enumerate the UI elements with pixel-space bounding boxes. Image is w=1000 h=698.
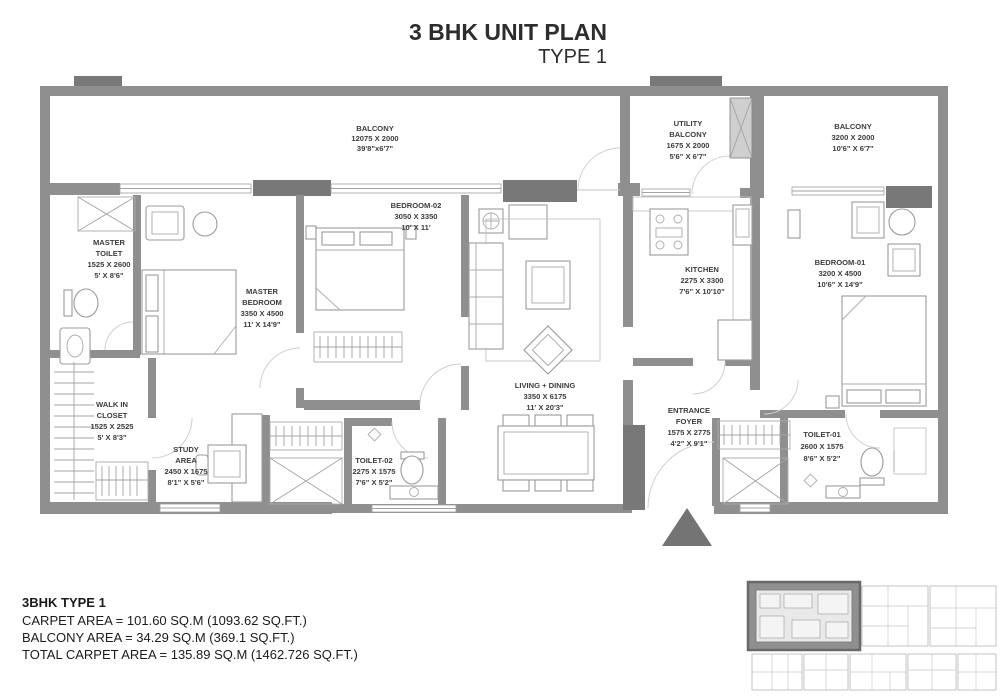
room-label-walk-in-closet: WALK IN CLOSET 1525 X 2525 5' X 8'3" bbox=[90, 400, 134, 442]
svg-text:10'6" X 6'7": 10'6" X 6'7" bbox=[832, 144, 874, 153]
bedside-table-icon bbox=[826, 396, 839, 408]
coffee-table-icon bbox=[526, 261, 570, 309]
bedroom-02-furniture bbox=[306, 226, 416, 362]
title-sub: TYPE 1 bbox=[538, 46, 607, 68]
room-label-kitchen: KITCHEN 2275 X 3300 7'6" X 10'10" bbox=[679, 265, 725, 296]
svg-text:11' X 20'3": 11' X 20'3" bbox=[526, 403, 564, 412]
room-label-master-bedroom: MASTER BEDROOM 3350 X 4500 11' X 14'9" bbox=[240, 287, 283, 329]
key-plan-highlighted-unit bbox=[748, 582, 860, 650]
svg-text:WALK IN: WALK IN bbox=[96, 400, 128, 409]
room-label-bedroom-02: BEDROOM-02 3050 X 3350 10' X 11' bbox=[391, 201, 442, 232]
master-bedroom-furniture bbox=[142, 206, 236, 354]
svg-text:3200 X 2000: 3200 X 2000 bbox=[831, 133, 874, 142]
svg-text:TOILET-01: TOILET-01 bbox=[803, 430, 841, 439]
svg-text:39'8"x6'7": 39'8"x6'7" bbox=[357, 144, 394, 153]
svg-text:BEDROOM-01: BEDROOM-01 bbox=[815, 258, 866, 267]
area-summary: 3BHK TYPE 1 CARPET AREA = 101.60 SQ.M (1… bbox=[22, 595, 358, 662]
shower-icon bbox=[894, 428, 926, 474]
svg-text:ENTRANCE: ENTRANCE bbox=[668, 406, 710, 415]
room-label-living-dining: LIVING + DINING 3350 X 6175 11' X 20'3" bbox=[515, 381, 576, 412]
dining-chair-icon bbox=[503, 480, 529, 491]
washbasin-icon bbox=[60, 328, 90, 364]
svg-text:2275 X 3300: 2275 X 3300 bbox=[680, 276, 723, 285]
tv-unit-icon bbox=[509, 205, 547, 239]
room-label-toilet-01: TOILET-01 2600 X 1575 8'6" X 5'2" bbox=[800, 430, 844, 463]
svg-text:AREA: AREA bbox=[175, 456, 197, 465]
room-label-balcony-right: BALCONY 3200 X 2000 10'6" X 6'7" bbox=[831, 122, 874, 153]
svg-text:CLOSET: CLOSET bbox=[97, 411, 128, 420]
summary-carpet-area: CARPET AREA = 101.60 SQ.M (1093.62 SQ.FT… bbox=[22, 613, 307, 628]
summary-heading: 3BHK TYPE 1 bbox=[22, 595, 106, 610]
svg-text:3200 X 4500: 3200 X 4500 bbox=[818, 269, 861, 278]
walk-in-closet-shelves bbox=[54, 362, 148, 500]
summary-balcony-area: BALCONY AREA = 34.29 SQ.M (369.1 SQ.FT.) bbox=[22, 630, 295, 645]
svg-text:1575 X 2775: 1575 X 2775 bbox=[667, 428, 711, 437]
svg-text:3350 X 6175: 3350 X 6175 bbox=[523, 392, 567, 401]
dining-table-icon bbox=[498, 426, 594, 480]
svg-text:FOYER: FOYER bbox=[676, 417, 703, 426]
furniture bbox=[54, 98, 926, 504]
svg-text:BEDROOM-02: BEDROOM-02 bbox=[391, 201, 442, 210]
room-label-bedroom-01: BEDROOM-01 3200 X 4500 10'6" X 14'9" bbox=[815, 258, 866, 289]
floor-plan-sheet: 3 BHK UNIT PLAN TYPE 1 bbox=[0, 0, 1000, 698]
svg-text:5' X 8'6": 5' X 8'6" bbox=[94, 271, 124, 280]
svg-text:BEDROOM: BEDROOM bbox=[242, 298, 282, 307]
svg-text:12075 X 2000: 12075 X 2000 bbox=[351, 134, 398, 143]
svg-text:5' X 8'3": 5' X 8'3" bbox=[97, 433, 127, 442]
svg-text:10'6" X 14'9": 10'6" X 14'9" bbox=[817, 280, 863, 289]
bedside-table-icon bbox=[306, 226, 316, 239]
floor-plan-drawing: 3 BHK UNIT PLAN TYPE 1 bbox=[0, 0, 1000, 698]
dining-chair-icon bbox=[535, 415, 561, 426]
entrance-arrow-icon bbox=[662, 508, 712, 546]
dining-chair-icon bbox=[567, 415, 593, 426]
foyer-closet bbox=[718, 421, 790, 504]
living-dining-furniture bbox=[469, 205, 600, 491]
svg-text:4'2" X 9'1": 4'2" X 9'1" bbox=[671, 439, 708, 448]
dining-chair-icon bbox=[535, 480, 561, 491]
side-table-icon bbox=[193, 212, 217, 236]
round-table-icon bbox=[889, 209, 915, 235]
svg-text:STUDY: STUDY bbox=[173, 445, 199, 454]
dresser-icon bbox=[788, 210, 800, 238]
floor-drain-icon bbox=[804, 474, 817, 487]
room-label-entrance-foyer: ENTRANCE FOYER 1575 X 2775 4'2" X 9'1" bbox=[667, 406, 711, 448]
svg-text:3350 X 4500: 3350 X 4500 bbox=[240, 309, 283, 318]
svg-text:10' X 11': 10' X 11' bbox=[401, 223, 431, 232]
bedroom-01-furniture bbox=[788, 202, 926, 408]
master-toilet-fixtures bbox=[60, 197, 135, 364]
room-label-utility-balcony: UTILITY BALCONY 1675 X 2000 5'6" X 6'7" bbox=[666, 119, 709, 161]
room-label-balcony-main: BALCONY 12075 X 2000 39'8"x6'7" bbox=[351, 124, 398, 153]
svg-text:BALCONY: BALCONY bbox=[834, 122, 872, 131]
dining-chair-icon bbox=[503, 415, 529, 426]
svg-text:MASTER: MASTER bbox=[93, 238, 126, 247]
title-main: 3 BHK UNIT PLAN bbox=[409, 19, 607, 45]
dining-chair-icon bbox=[567, 480, 593, 491]
svg-text:UTILITY: UTILITY bbox=[674, 119, 703, 128]
sofa-icon bbox=[469, 243, 503, 349]
svg-text:2600 X 1575: 2600 X 1575 bbox=[800, 442, 844, 451]
room-label-master-toilet: MASTER TOILET 1525 X 2600 5' X 8'6" bbox=[87, 238, 130, 280]
svg-text:2450 X 1675: 2450 X 1675 bbox=[164, 467, 208, 476]
svg-text:1675 X 2000: 1675 X 2000 bbox=[666, 141, 709, 150]
floor-drain-icon bbox=[368, 428, 381, 441]
svg-text:TOILET-02: TOILET-02 bbox=[355, 456, 392, 465]
svg-text:2275 X 1575: 2275 X 1575 bbox=[352, 467, 396, 476]
svg-text:8'1" X 5'6": 8'1" X 5'6" bbox=[168, 478, 205, 487]
room-label-toilet-02: TOILET-02 2275 X 1575 7'6" X 5'2" bbox=[352, 456, 396, 487]
fridge-icon bbox=[718, 320, 752, 360]
svg-text:BALCONY: BALCONY bbox=[669, 130, 707, 139]
key-plan bbox=[748, 582, 996, 690]
svg-text:3050 X 3350: 3050 X 3350 bbox=[394, 212, 437, 221]
washbasin-icon bbox=[390, 486, 438, 499]
wc-icon bbox=[64, 290, 72, 316]
svg-text:7'6" X 5'2": 7'6" X 5'2" bbox=[356, 478, 393, 487]
svg-text:8'6" X 5'2": 8'6" X 5'2" bbox=[804, 454, 841, 463]
svg-text:LIVING + DINING: LIVING + DINING bbox=[515, 381, 576, 390]
svg-text:1525 X 2525: 1525 X 2525 bbox=[90, 422, 134, 431]
page-title: 3 BHK UNIT PLAN TYPE 1 bbox=[409, 19, 607, 68]
summary-total-area: TOTAL CARPET AREA = 135.89 SQ.M (1462.72… bbox=[22, 647, 358, 662]
svg-text:11' X 14'9": 11' X 14'9" bbox=[243, 320, 281, 329]
svg-text:7'6" X 10'10": 7'6" X 10'10" bbox=[679, 287, 725, 296]
svg-text:BALCONY: BALCONY bbox=[356, 124, 394, 133]
wc-icon bbox=[861, 448, 883, 476]
svg-text:TOILET: TOILET bbox=[96, 249, 123, 258]
accent-chair-icon bbox=[524, 326, 572, 374]
svg-text:1525 X 2600: 1525 X 2600 bbox=[87, 260, 130, 269]
svg-text:KITCHEN: KITCHEN bbox=[685, 265, 719, 274]
svg-text:5'6" X 6'7": 5'6" X 6'7" bbox=[670, 152, 707, 161]
svg-text:MASTER: MASTER bbox=[246, 287, 279, 296]
